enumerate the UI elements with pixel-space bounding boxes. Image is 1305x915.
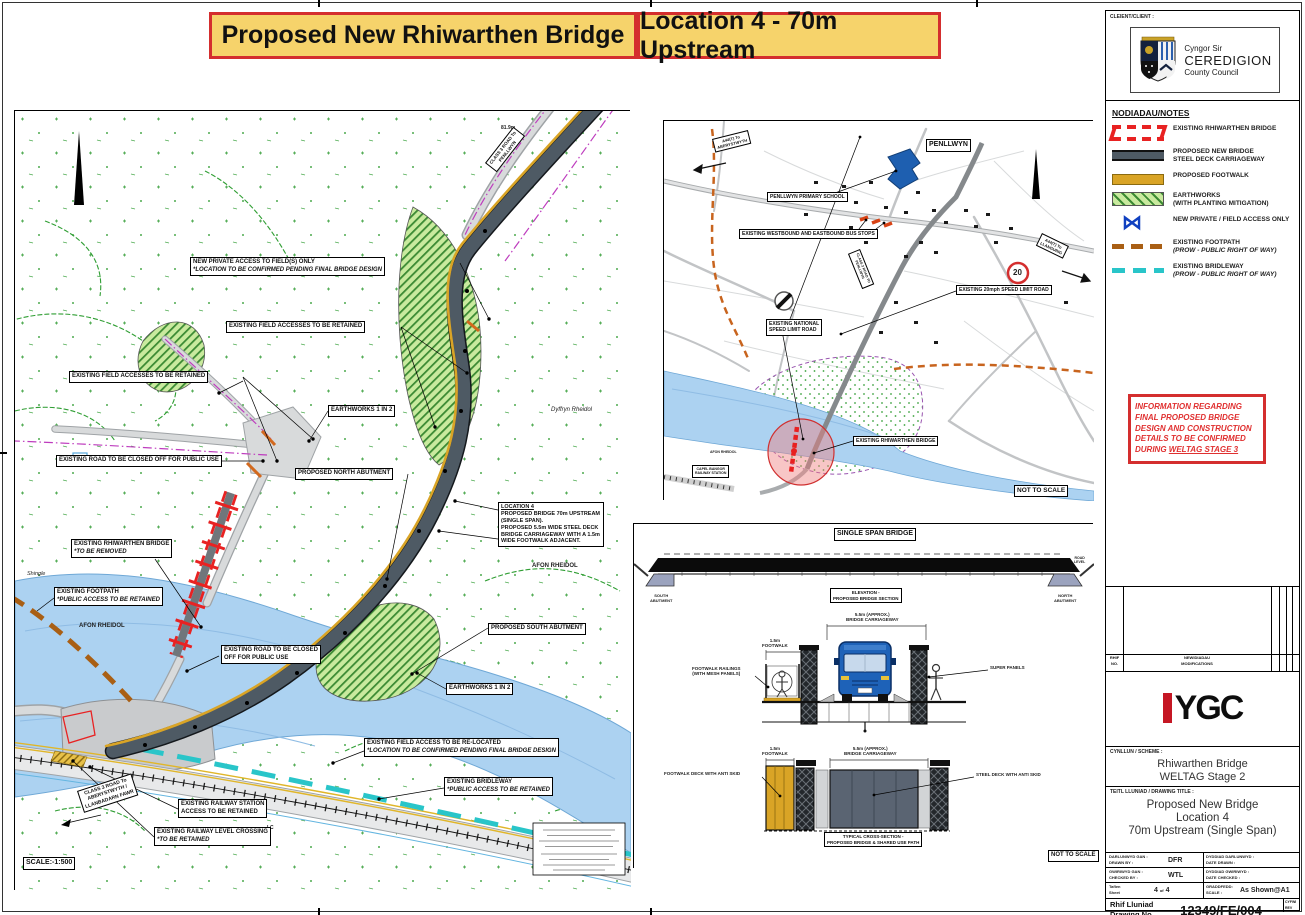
label-new-private-access: NEW PRIVATE ACCESS TO FIELD(S) ONLY*LOCA… — [190, 257, 385, 276]
rev-ref-label: NO. — [1106, 661, 1123, 667]
not-to-scale-panel: NOT TO SCALE — [1048, 850, 1099, 862]
legend-item-label: PROPOSED FOOTWALK — [1173, 172, 1249, 180]
legend-item: EXISTING RHIWARTHEN BRIDGE — [1112, 125, 1297, 141]
info-line: FINAL PROPOSED BRIDGE — [1135, 413, 1259, 424]
info-line: DETAILS TO BE CONFIRMED — [1135, 434, 1259, 445]
notes-heading: NODIADAU/NOTES — [1112, 108, 1189, 118]
dim-carriageway-2: 5.5m (APPROX.)BRIDGE CARRIAGEWAY — [844, 746, 897, 757]
label-penllwyn: PENLLWYN — [926, 139, 971, 152]
registration-tick — [0, 452, 7, 454]
council-crest-icon — [1138, 36, 1178, 84]
registration-tick — [976, 0, 978, 7]
banner-location-title: Location 4 - 70m Upstream — [637, 12, 941, 59]
north-abutment-caption: NORTHABUTMENT — [1054, 594, 1076, 604]
council-name-line2: CEREDIGION — [1184, 53, 1271, 68]
river-name-inset: AFON RHEIDOL — [710, 450, 737, 454]
smallprint-box — [533, 823, 625, 875]
main-site-plan: CLASS 3 ROAD ToPENLLWYN81.9mNEW PRIVATE … — [14, 110, 630, 890]
label-footwalk-railings: FOOTWALK RAILINGS(WITH MESH PANELS) — [692, 666, 741, 677]
date-checked-label-en: DATE CHECKED : — [1206, 875, 1249, 881]
dim-footwalk-2: 1.5mFOOTWALK — [762, 746, 788, 757]
label-road-closed-2: EXISTING ROAD TO BE CLOSEDOFF FOR PUBLIC… — [221, 645, 321, 664]
label-earthworks-2: EARTHWORKS 1 IN 2 — [446, 683, 513, 695]
title-block: CLEIENT/CLIENT : Cyngor Sir CEREDIGION C… — [1105, 10, 1300, 911]
rev-col-label: REV — [1285, 906, 1296, 912]
legend-item-label: NEW PRIVATE / FIELD ACCESS ONLY — [1173, 216, 1289, 224]
speed-limit-20-value: 20 — [1013, 268, 1022, 278]
south-abutment-caption: SOUTHABUTMENT — [650, 594, 672, 604]
label-20mph-road: EXISTING 20mph SPEED LIMIT ROAD — [956, 285, 1052, 295]
drawing-no-value: 12349/FE/004 — [1166, 903, 1276, 915]
earthworks-swatch — [1112, 192, 1164, 206]
label-existing-bridge-inset: EXISTING RHIWARTHEN BRIDGE — [853, 436, 938, 446]
river-name: AFON RHEIDOL — [79, 623, 125, 630]
weltag-info-box: INFORMATION REGARDING FINAL PROPOSED BRI… — [1128, 394, 1266, 464]
bridge-beam — [658, 558, 1070, 572]
label-super-panels: SUPER PANELS — [990, 665, 1025, 670]
checked-by-label-en: CHECKED BY : — [1109, 875, 1143, 881]
legend: EXISTING RHIWARTHEN BRIDGEPROPOSED NEW B… — [1112, 125, 1297, 280]
drawing-title-line3: 70m Upstream (Single Span) — [1106, 825, 1299, 837]
legend-item-label: EXISTING RHIWARTHEN BRIDGE — [1173, 125, 1276, 133]
info-line: DURING WELTAG STAGE 3 — [1135, 445, 1259, 456]
legend-item: PROPOSED NEW BRIDGESTEEL DECK CARRIAGEWA… — [1112, 148, 1297, 165]
label-road-closed-1: EXISTING ROAD TO BE CLOSED OFF FOR PUBLI… — [56, 455, 222, 467]
drawing-title-line2: Location 4 — [1106, 812, 1299, 824]
national-speed-limit-sign — [775, 292, 793, 310]
footpath-swatch — [1112, 244, 1164, 249]
registration-tick — [318, 908, 320, 915]
legend-item-label: PROPOSED NEW BRIDGESTEEL DECK CARRIAGEWA… — [1173, 148, 1265, 165]
ygc-logo: YGC — [1106, 671, 1299, 745]
legend-item: EXISTING BRIDLEWAY(PROW - PUBLIC RIGHT O… — [1112, 263, 1297, 280]
legend-item: EARTHWORKS(WITH PLANTING MITIGATION) — [1112, 192, 1297, 209]
label-existing-footpath: EXISTING FOOTPATH*PUBLIC ACCESS TO BE RE… — [54, 587, 163, 606]
van-graphic — [834, 642, 896, 701]
footwalk-swatch — [1112, 174, 1164, 185]
label-steel-deck: STEEL DECK WITH ANTI SKID — [976, 772, 1041, 777]
registration-tick — [318, 0, 320, 7]
banner-left-text: Proposed New Rhiwarthen Bridge — [222, 21, 625, 50]
label-field-access-relocated: EXISTING FIELD ACCESS TO BE RE-LOCATED*L… — [364, 738, 559, 757]
bridge-swatch — [1112, 125, 1164, 141]
scale-label: SCALE:-1:500 — [23, 857, 75, 870]
scale-label-en: SCALE : — [1206, 890, 1233, 896]
drawing-sheet: Proposed New Rhiwarthen Bridge Location … — [0, 0, 1305, 915]
label-existing-bridge: EXISTING RHIWARTHEN BRIDGE*TO BE REMOVED — [71, 539, 172, 558]
info-line: DESIGN AND CONSTRUCTION — [1135, 424, 1259, 435]
shingle-text: Shingle — [27, 571, 45, 578]
banner-project-title: Proposed New Rhiwarthen Bridge — [209, 12, 637, 59]
ygc-logo-text: YGC — [1175, 689, 1243, 728]
truss-tower — [930, 768, 948, 830]
label-capel-bangor-station: CAPEL BANGORRAILWAY STATION — [692, 465, 729, 478]
legend-item: EXISTING FOOTPATH(PROW - PUBLIC RIGHT OF… — [1112, 239, 1297, 256]
drawing-no-label-en: Drawing No. — [1110, 910, 1154, 915]
cross-section-caption: TYPICAL CROSS-SECTION -PROPOSED BRIDGE &… — [824, 832, 922, 847]
legend-item-label: EARTHWORKS(WITH PLANTING MITIGATION) — [1173, 192, 1269, 209]
dim-footwalk-1: 1.5mFOOTWALK — [762, 638, 788, 649]
not-to-scale-inset: NOT TO SCALE — [1014, 485, 1068, 497]
inset-location-map: PENLLWYNA44(T) ToABERYSTWYTHA44(T) ToLLA… — [663, 120, 1093, 500]
legend-item: PROPOSED FOOTWALK — [1112, 172, 1297, 185]
label-level-crossing: EXISTING RAILWAY LEVEL CROSSING*TO BE RE… — [154, 827, 271, 846]
registration-tick — [650, 908, 652, 915]
scheme-line2: WELTAG Stage 2 — [1106, 771, 1299, 783]
legend-item-label: EXISTING FOOTPATH(PROW - PUBLIC RIGHT OF… — [1173, 239, 1277, 256]
elevation-caption: ELEVATION -PROPOSED BRIDGE SECTION — [830, 588, 902, 603]
weltag-stage-emphasis: WELTAG STAGE 3 — [1169, 445, 1238, 454]
label-earthworks-1: EARTHWORKS 1 IN 2 — [328, 405, 395, 417]
drawing-title-label: TEITL LLUNIAD / DRAWING TITLE : — [1110, 789, 1194, 795]
ygc-logo-bar — [1163, 693, 1172, 723]
label-footwalk-deck: FOOTWALK DECK WITH ANTI SKID — [664, 771, 740, 776]
revision-strip: RHIF NO. NEWIDIADAU MODIFICATIONS — [1106, 586, 1299, 671]
bridleway-swatch — [1112, 268, 1164, 273]
council-name-line1: Cyngor Sir — [1184, 44, 1271, 53]
drawing-no-label-cy: Rhif Lluniad — [1110, 900, 1154, 910]
rev-mods-label: MODIFICATIONS — [1123, 661, 1271, 667]
sheet-label-en: Sheet — [1109, 890, 1120, 896]
legend-item-label: EXISTING BRIDLEWAY(PROW - PUBLIC RIGHT O… — [1173, 263, 1277, 280]
label-south-abutment: PROPOSED SOUTH ABUTMENT — [488, 623, 586, 635]
label-national-speed-road: EXISTING NATIONALSPEED LIMIT ROAD — [766, 319, 822, 336]
label-field-access-retained-2: EXISTING FIELD ACCESSES TO BE RETAINED — [69, 371, 208, 383]
label-north-abutment: PROPOSED NORTH ABUTMENT — [295, 468, 393, 480]
bridge-sections-panel: SINGLE SPAN BRIDGESOUTHABUTMENTNORTHABUT… — [633, 523, 1093, 868]
drawing-title-line1: Proposed New Bridge — [1106, 799, 1299, 811]
drawn-by-value: DFR — [1168, 857, 1182, 864]
council-name-line3: County Council — [1184, 68, 1271, 77]
truss-tower — [911, 650, 927, 724]
river-name: AFON RHEIDOL — [532, 563, 578, 570]
legend-item: NEW PRIVATE / FIELD ACCESS ONLY — [1112, 216, 1297, 232]
label-bus-stops: EXISTING WESTBOUND AND EASTBOUND BUS STO… — [739, 229, 878, 239]
info-line: INFORMATION REGARDING — [1135, 402, 1259, 413]
bowtie-swatch — [1112, 216, 1164, 232]
council-logo: Cyngor Sir CEREDIGION County Council — [1130, 27, 1280, 93]
date-drawn-label-en: DATE DRAWN : — [1206, 860, 1254, 866]
label-field-access-retained-1: EXISTING FIELD ACCESSES TO BE RETAINED — [226, 321, 365, 333]
scale-value: As Shown@A1 — [1240, 887, 1290, 894]
bridge-sections-graphic — [634, 524, 1094, 869]
label-existing-bridleway: EXISTING BRIDLEWAY*PUBLIC ACCESS TO BE R… — [444, 777, 553, 796]
dim-carriageway-1: 5.5m (APPROX.)BRIDGE CARRIAGEWAY — [846, 612, 899, 623]
label-location-4: LOCATION 4PROPOSED BRIDGE 70m UPSTREAM (… — [498, 502, 604, 547]
checked-by-value: WTL — [1168, 872, 1183, 879]
sheet-value: 4 of 4 — [1154, 887, 1170, 894]
rev-col-label: CYFWI — [1285, 900, 1296, 906]
truss-tower — [801, 650, 817, 724]
footwalk-deck — [766, 766, 794, 830]
valley-name: Dyffryn Rheidol — [551, 407, 592, 414]
label-primary-school: PENLLWYN PRIMARY SCHOOL — [767, 192, 848, 202]
scheme-label: CYNLLUN / SCHEME : — [1110, 749, 1163, 755]
banner-right-text: Location 4 - 70m Upstream — [640, 7, 938, 65]
panel-title: SINGLE SPAN BRIDGE — [834, 528, 916, 541]
client-label: CLEIENT/CLIENT : — [1110, 14, 1154, 20]
scheme-line1: Rhiwarthen Bridge — [1106, 758, 1299, 770]
deck-swatch — [1112, 150, 1164, 161]
label-railway-station-access: EXISTING RAILWAY STATIONACCESS TO BE RET… — [178, 799, 267, 818]
main-site-plan-graphic — [15, 111, 631, 891]
truss-tower — [796, 768, 814, 830]
road-level-caption: ROADLEVEL — [1074, 556, 1085, 564]
drawn-by-label-en: DRAWN BY : — [1109, 860, 1148, 866]
